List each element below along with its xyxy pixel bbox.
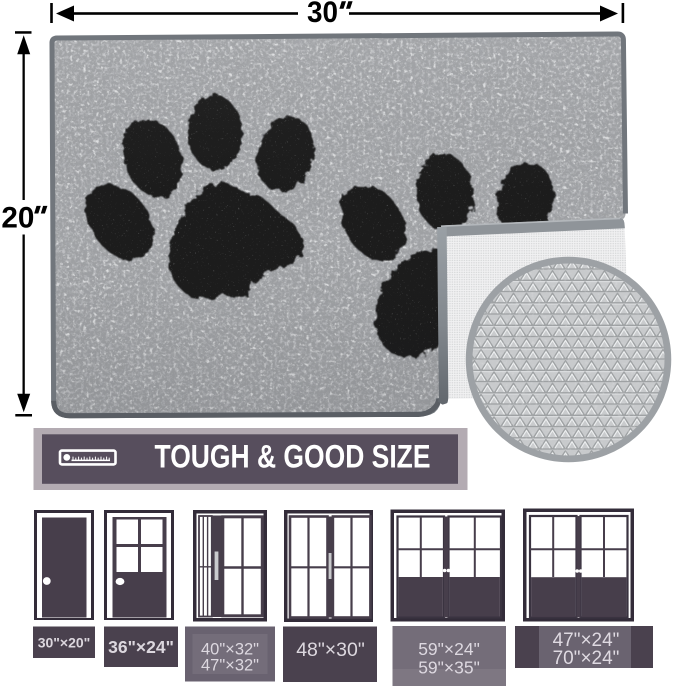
svg-text:TOUGH & GOOD SIZE: TOUGH & GOOD SIZE	[155, 439, 431, 475]
svg-text:48"×30": 48"×30"	[296, 639, 365, 661]
svg-text:70"×24": 70"×24"	[553, 648, 620, 669]
svg-text:59"×24": 59"×24"	[418, 639, 480, 659]
svg-text:30"×20": 30"×20"	[38, 635, 91, 651]
svg-text:36"×24": 36"×24"	[108, 637, 174, 657]
svg-text:59"×35": 59"×35"	[418, 658, 480, 678]
svg-text:20: 20	[1, 202, 34, 235]
svg-text:47"×32": 47"×32"	[201, 657, 259, 675]
svg-text:30: 30	[307, 0, 338, 29]
